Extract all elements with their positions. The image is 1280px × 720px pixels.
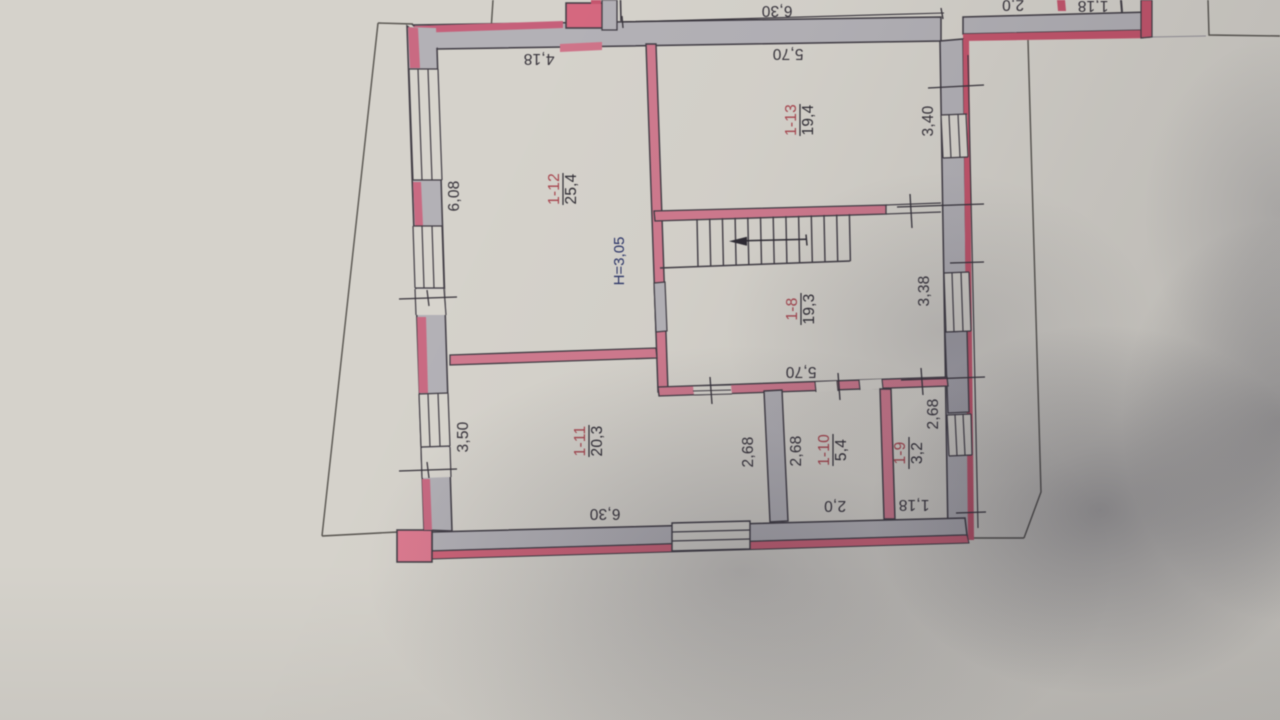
svg-text:1,18: 1,18 [899, 496, 930, 513]
svg-text:6,08: 6,08 [446, 181, 463, 212]
svg-text:2,68: 2,68 [925, 399, 942, 430]
svg-text:19,3: 19,3 [801, 294, 818, 325]
svg-text:2,68: 2,68 [788, 436, 805, 467]
svg-text:2,0: 2,0 [824, 497, 846, 514]
svg-text:2,0: 2,0 [1002, 0, 1024, 13]
svg-text:H=3,05: H=3,05 [611, 237, 628, 286]
svg-text:3,2: 3,2 [909, 442, 926, 464]
svg-text:25,4: 25,4 [563, 173, 580, 204]
svg-text:6,30: 6,30 [761, 2, 792, 19]
svg-text:1-12: 1-12 [546, 173, 563, 205]
svg-text:5,4: 5,4 [833, 439, 850, 461]
svg-text:5,70: 5,70 [772, 45, 803, 62]
svg-text:3,40: 3,40 [920, 105, 937, 136]
svg-text:1-10: 1-10 [816, 434, 833, 466]
svg-text:2,68: 2,68 [740, 437, 757, 468]
svg-text:3,50: 3,50 [455, 421, 472, 452]
svg-text:6,30: 6,30 [589, 505, 620, 522]
svg-text:1-9: 1-9 [892, 441, 909, 464]
svg-text:3,38: 3,38 [916, 276, 933, 307]
svg-text:4,18: 4,18 [524, 50, 555, 67]
svg-text:1,18: 1,18 [1078, 0, 1109, 14]
svg-text:1-13: 1-13 [783, 104, 800, 136]
svg-text:1-11: 1-11 [572, 426, 589, 457]
svg-text:19,4: 19,4 [800, 104, 817, 135]
svg-text:20,3: 20,3 [589, 426, 606, 457]
svg-text:1-8: 1-8 [784, 297, 801, 320]
svg-text:5,70: 5,70 [785, 363, 816, 380]
